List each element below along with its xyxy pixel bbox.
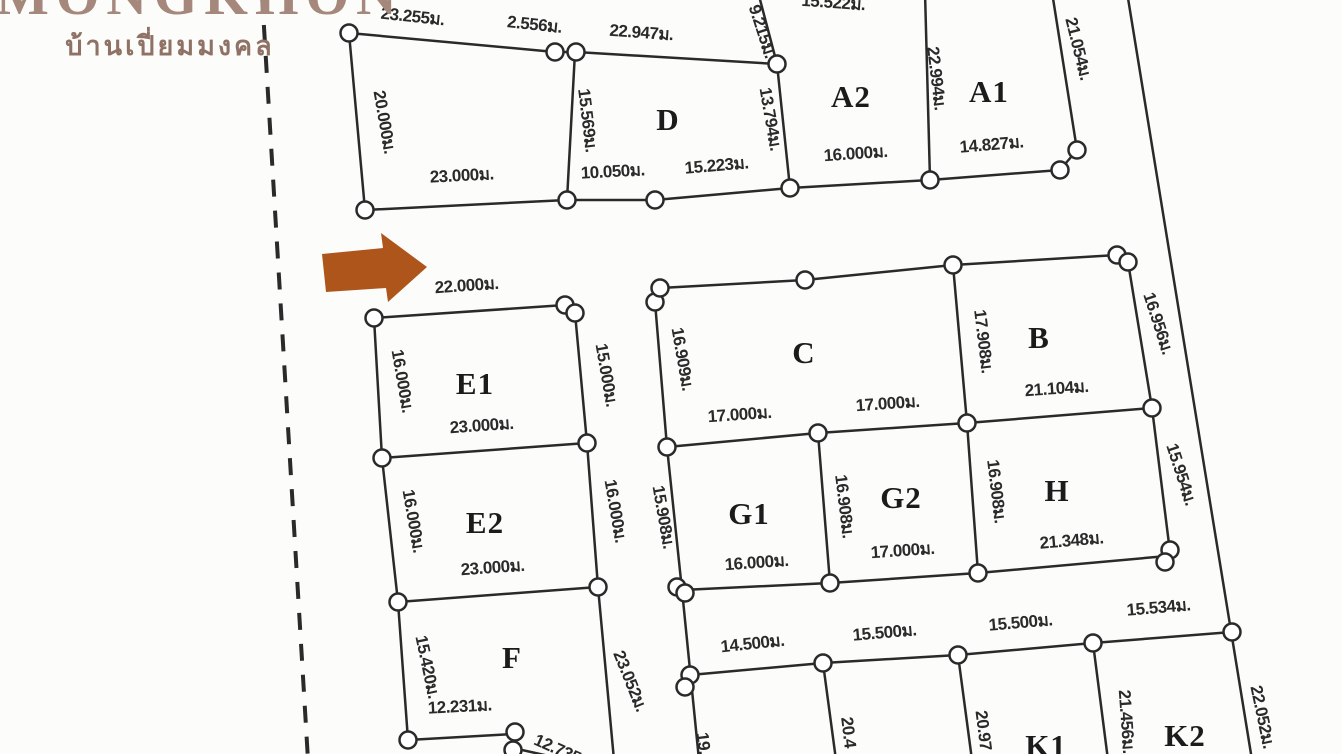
lot-edge xyxy=(1128,262,1152,408)
survey-marker xyxy=(959,415,976,432)
survey-marker xyxy=(341,25,358,42)
dimension-label: 23.000ม. xyxy=(449,414,514,437)
dimension-label: 16.000ม. xyxy=(601,478,631,544)
lot-edge xyxy=(660,280,805,288)
lot-label: G1 xyxy=(728,496,770,531)
survey-marker xyxy=(547,44,564,61)
lot-label: F xyxy=(502,640,522,675)
survey-marker xyxy=(810,425,827,442)
survey-marker xyxy=(579,435,596,452)
lot-label: H xyxy=(1044,473,1069,508)
lot-edge xyxy=(655,302,667,447)
dimension-label: 15.908ม. xyxy=(649,484,679,550)
dimension-label: 2.556ม. xyxy=(506,12,563,37)
dimension-label: 16.000ม. xyxy=(724,551,789,574)
dimension-label: 16.956ม. xyxy=(1139,290,1177,357)
dimension-label: 16.000ม. xyxy=(823,142,888,165)
boundary-dashed-line xyxy=(262,0,308,754)
lot-edge xyxy=(567,52,575,200)
dimension-label: 15.000ม. xyxy=(592,342,622,408)
dimension-label: 15.522ม. xyxy=(801,0,866,14)
survey-marker xyxy=(922,172,939,189)
lot-edge xyxy=(349,33,365,210)
dimension-label: 15.500ม. xyxy=(852,620,917,645)
lot-edge xyxy=(365,200,567,210)
survey-marker xyxy=(559,192,576,209)
survey-marker xyxy=(950,647,967,664)
lot-label: E1 xyxy=(456,366,494,401)
dimension-label: 15.500ม. xyxy=(988,610,1053,635)
dimension-label: 22.947ม. xyxy=(609,21,674,44)
dimension-label: 12.231ม. xyxy=(427,695,492,717)
lot-edge xyxy=(805,265,953,280)
dimension-label: 23.000ม. xyxy=(429,164,494,186)
lot-label: A2 xyxy=(831,79,871,114)
lot-edge xyxy=(655,188,790,200)
dimension-label: 15.223ม. xyxy=(684,153,749,178)
survey-marker xyxy=(567,305,584,322)
dimension-label: 20.000ม. xyxy=(370,89,400,155)
lot-edge xyxy=(1152,408,1170,552)
lot-edge xyxy=(978,556,1167,573)
lot-edge xyxy=(967,423,978,573)
dimension-label: 16.000ม. xyxy=(388,348,418,414)
lot-edge xyxy=(1093,632,1232,643)
lot-edge xyxy=(374,318,382,458)
lot-edge xyxy=(958,643,1093,655)
dimension-label: 14.500ม. xyxy=(720,631,786,657)
survey-marker xyxy=(647,192,664,209)
lot-edge xyxy=(349,33,555,52)
lot-label: A1 xyxy=(969,74,1009,109)
dimension-label: 21.054ม. xyxy=(1061,15,1095,82)
lot-edge xyxy=(408,734,513,740)
lot-edge xyxy=(667,433,818,447)
lot-label: I xyxy=(753,748,766,754)
dimension-label: 9.215ม. xyxy=(745,2,780,60)
dimension-label: 15.420ม. xyxy=(411,634,443,700)
survey-marker xyxy=(945,257,962,274)
dimension-label: 14.827ม. xyxy=(959,132,1024,157)
dimension-label: 21.348ม. xyxy=(1039,528,1104,553)
lot-edge xyxy=(818,433,830,583)
plot-map: 23.255ม.2.556ม.22.947ม.15.522ม.9.215ม.21… xyxy=(0,0,1342,754)
dimension-label: 22.052ม. xyxy=(1246,684,1278,750)
lot-edge xyxy=(374,305,565,318)
lot-label: G2 xyxy=(880,480,922,515)
lot-edge xyxy=(587,443,598,587)
survey-marker xyxy=(366,310,383,327)
direction-arrow xyxy=(322,233,427,302)
lot-edge xyxy=(953,265,967,423)
survey-marker xyxy=(797,272,814,289)
survey-marker xyxy=(659,439,676,456)
lot-edge xyxy=(382,443,587,458)
lot-label: K2 xyxy=(1164,718,1206,753)
survey-marker xyxy=(1224,624,1241,641)
lot-edge xyxy=(823,663,836,754)
dimension-label: 17.908ม. xyxy=(970,308,997,374)
lot-edge xyxy=(790,180,930,188)
lot-edge xyxy=(818,423,967,433)
survey-marker xyxy=(677,585,694,602)
dimension-label: 23.255ม. xyxy=(380,4,446,30)
dimension-label: 17.000ม. xyxy=(707,403,772,426)
lot-edge xyxy=(958,655,972,754)
survey-marker xyxy=(815,655,832,672)
survey-marker xyxy=(652,280,669,297)
lot-edge xyxy=(398,587,598,602)
dimension-label: 16.908ม. xyxy=(831,473,858,539)
survey-plan-page: 23.255ม.2.556ม.22.947ม.15.522ม.9.215ม.21… xyxy=(0,0,1342,754)
lot-edge xyxy=(682,583,830,590)
lot-edge xyxy=(830,573,978,583)
lot-edge xyxy=(967,408,1152,423)
survey-marker xyxy=(1120,254,1137,271)
survey-marker xyxy=(390,594,407,611)
lot-edge xyxy=(930,170,1060,180)
lot-edge xyxy=(382,458,398,602)
lot-edge xyxy=(575,313,587,443)
lot-label: B xyxy=(1028,320,1050,355)
survey-marker xyxy=(677,679,694,696)
dimension-label: 23.052ม. xyxy=(609,648,651,714)
lot-label: C xyxy=(792,335,815,370)
dimension-label: 21.104ม. xyxy=(1024,377,1089,400)
survey-marker xyxy=(507,724,524,741)
survey-marker xyxy=(505,742,522,754)
dimension-label: 21.456ม. xyxy=(1115,689,1138,754)
dimension-label: 15.954ม. xyxy=(1162,441,1200,508)
survey-marker xyxy=(568,44,585,61)
dimension-label: 17.000ม. xyxy=(855,392,920,415)
survey-marker xyxy=(374,450,391,467)
dimension-label: 12.735ม. xyxy=(531,730,597,754)
lot-label: E2 xyxy=(466,505,504,540)
dimension-label: 20.97 xyxy=(972,709,996,751)
lot-label: K1 xyxy=(1025,728,1067,754)
survey-marker xyxy=(1069,142,1086,159)
lot-edge xyxy=(598,587,614,754)
dimension-label: 20.4 xyxy=(837,716,860,750)
dimension-label: 19. xyxy=(693,731,715,754)
survey-marker xyxy=(590,579,607,596)
survey-marker xyxy=(970,565,987,582)
survey-marker xyxy=(400,732,417,749)
survey-marker xyxy=(782,180,799,197)
lot-edge xyxy=(823,655,958,663)
dimension-label: 16.908ม. xyxy=(983,458,1010,524)
lot-label: J xyxy=(902,746,919,754)
lot-edge xyxy=(576,52,777,64)
dimension-label: 15.569ม. xyxy=(574,87,601,153)
dimension-label: 10.050ม. xyxy=(580,160,645,182)
lot-edge xyxy=(690,663,823,675)
dimension-label: 15.534ม. xyxy=(1126,595,1191,620)
survey-marker xyxy=(1157,554,1174,571)
lot-edge xyxy=(953,255,1117,265)
lot-label: D xyxy=(656,102,679,137)
lot-edge xyxy=(398,602,408,740)
survey-marker xyxy=(1052,162,1069,179)
survey-marker xyxy=(357,202,374,219)
dimension-label: 23.000ม. xyxy=(460,556,525,579)
dimension-label: 17.000ม. xyxy=(870,539,935,562)
dimension-label: 16.909ม. xyxy=(668,326,698,392)
survey-marker xyxy=(1085,635,1102,652)
survey-marker xyxy=(822,575,839,592)
lot-edge xyxy=(1093,643,1108,754)
survey-marker xyxy=(1144,400,1161,417)
dimension-label: 16.000ม. xyxy=(399,488,429,554)
survey-marker xyxy=(769,56,786,73)
dimension-label: 22.000ม. xyxy=(434,274,499,297)
